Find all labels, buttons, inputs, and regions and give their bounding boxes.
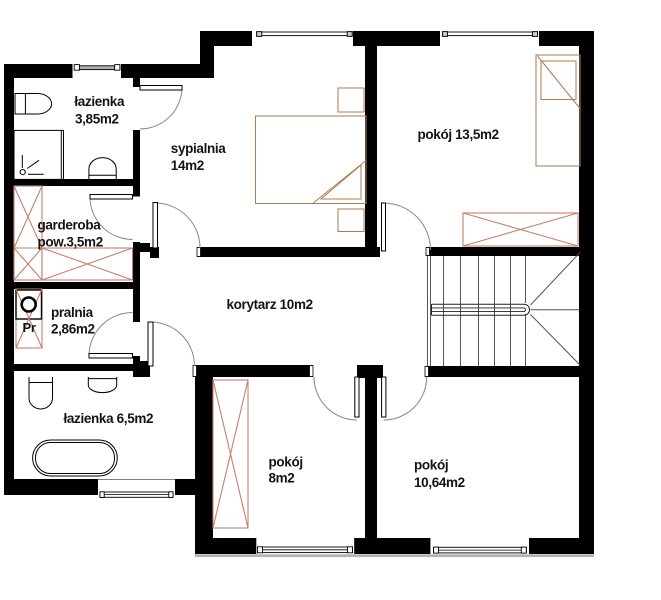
svg-text:garderoba: garderoba — [38, 218, 102, 233]
svg-text:łazienka 6,5m2: łazienka 6,5m2 — [64, 411, 154, 426]
svg-text:2,86m2: 2,86m2 — [51, 322, 95, 337]
svg-text:pokój: pokój — [269, 455, 303, 470]
svg-text:łazienka: łazienka — [74, 94, 125, 109]
svg-text:korytarz 10m2: korytarz 10m2 — [227, 297, 313, 312]
svg-text:pokój 13,5m2: pokój 13,5m2 — [418, 127, 499, 142]
svg-text:pow.3,5m2: pow.3,5m2 — [38, 235, 103, 250]
svg-text:Pr: Pr — [23, 320, 36, 335]
svg-text:pokój: pokój — [414, 458, 448, 473]
svg-text:pralnia: pralnia — [51, 305, 94, 320]
svg-text:10,64m2: 10,64m2 — [414, 475, 465, 490]
svg-text:14m2: 14m2 — [171, 158, 204, 173]
svg-text:8m2: 8m2 — [269, 471, 295, 486]
svg-text:sypialnia: sypialnia — [171, 141, 226, 156]
svg-text:3,85m2: 3,85m2 — [75, 112, 119, 127]
